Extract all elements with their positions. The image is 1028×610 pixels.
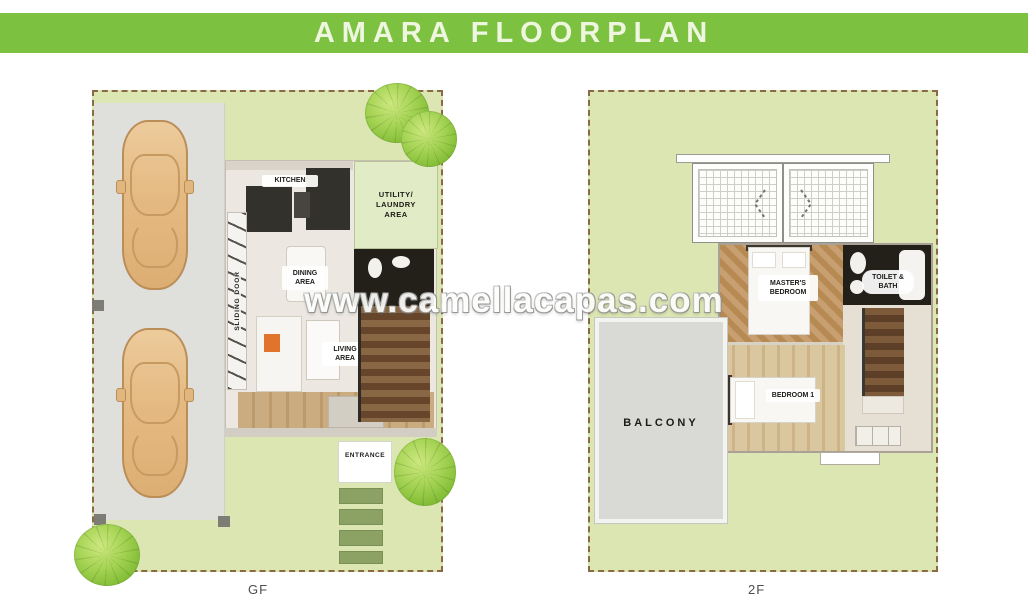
gf-stairs	[358, 306, 430, 422]
pillow	[735, 381, 755, 419]
gf-bottom-sill	[225, 428, 437, 437]
car-mirror-icon	[116, 388, 126, 402]
title-banner: AMARA FLOORPLAN	[0, 13, 1028, 53]
roof-panel	[783, 163, 874, 243]
pillow	[782, 252, 806, 268]
toilet-fixture-icon	[850, 252, 866, 274]
stepping-stone	[339, 488, 383, 504]
balcony-label: BALCONY	[623, 417, 698, 429]
car-icon	[122, 328, 188, 498]
tree-canopy	[74, 524, 140, 586]
sf-window-sill	[820, 452, 880, 465]
tree-canopy	[394, 438, 456, 506]
roof-arrow-left-icon	[750, 186, 770, 222]
tree-icon	[365, 83, 457, 167]
car-mirror-icon	[116, 180, 126, 194]
stepping-stone	[339, 551, 383, 564]
kitchen-label: KITCHEN	[262, 175, 318, 187]
gate-post	[218, 516, 230, 527]
sink-fixture-icon	[392, 256, 410, 268]
sf-stairs	[862, 308, 904, 396]
entrance-label: ENTRANCE	[343, 451, 387, 462]
tree-icon	[74, 524, 140, 586]
sf-window-tile	[855, 426, 901, 446]
balcony: BALCONY	[595, 318, 727, 523]
bedroom1-label: BEDROOM 1	[766, 389, 820, 402]
pillow	[752, 252, 776, 268]
sofa	[256, 316, 302, 392]
sf-caption: 2F	[748, 582, 765, 597]
car-mirror-icon	[184, 388, 194, 402]
car-mirror-icon	[184, 180, 194, 194]
floorplan-page: AMARA FLOORPLAN KITCHEN SLIDING DOOR DIN…	[0, 0, 1028, 610]
entrance-pad: ENTRANCE	[338, 441, 392, 483]
watermark: www.camellacapas.com	[0, 281, 1028, 321]
tree-icon	[394, 438, 456, 508]
gf-caption: GF	[248, 582, 268, 597]
kitchen-appliance	[294, 192, 310, 218]
sofa-cushion	[264, 334, 280, 352]
kitchen-counter	[246, 186, 292, 232]
roof-arrow-right-icon	[796, 186, 816, 222]
toilet-fixture-icon	[368, 258, 382, 278]
utility-laundry-area: UTILITY/ LAUNDRY AREA	[354, 161, 438, 249]
car-icon	[122, 120, 188, 290]
roof-ridge	[676, 154, 890, 163]
tree-canopy	[401, 111, 457, 167]
stepping-stone	[339, 530, 383, 546]
page-title: AMARA FLOORPLAN	[314, 17, 714, 50]
stair-landing	[862, 396, 904, 414]
utility-laundry-label: UTILITY/ LAUNDRY AREA	[374, 189, 418, 221]
stepping-stone	[339, 509, 383, 525]
roof-panel	[692, 163, 783, 243]
